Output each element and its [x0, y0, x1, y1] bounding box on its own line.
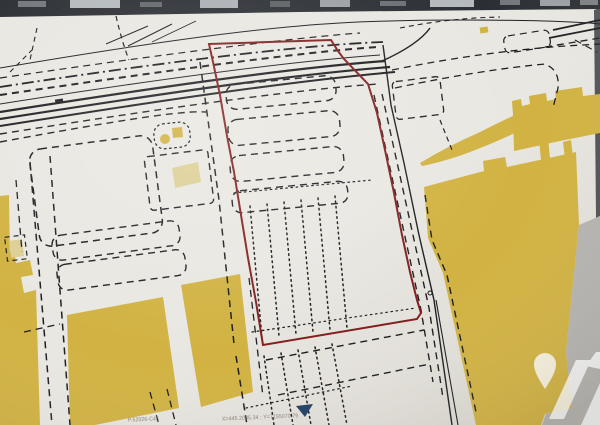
plan-drawing: [0, 0, 600, 425]
photographed-site-plan: P.52026-C45 X=445.2085.34 ; Y=7155070.79: [0, 0, 600, 425]
photo-vignette: [0, 0, 600, 425]
